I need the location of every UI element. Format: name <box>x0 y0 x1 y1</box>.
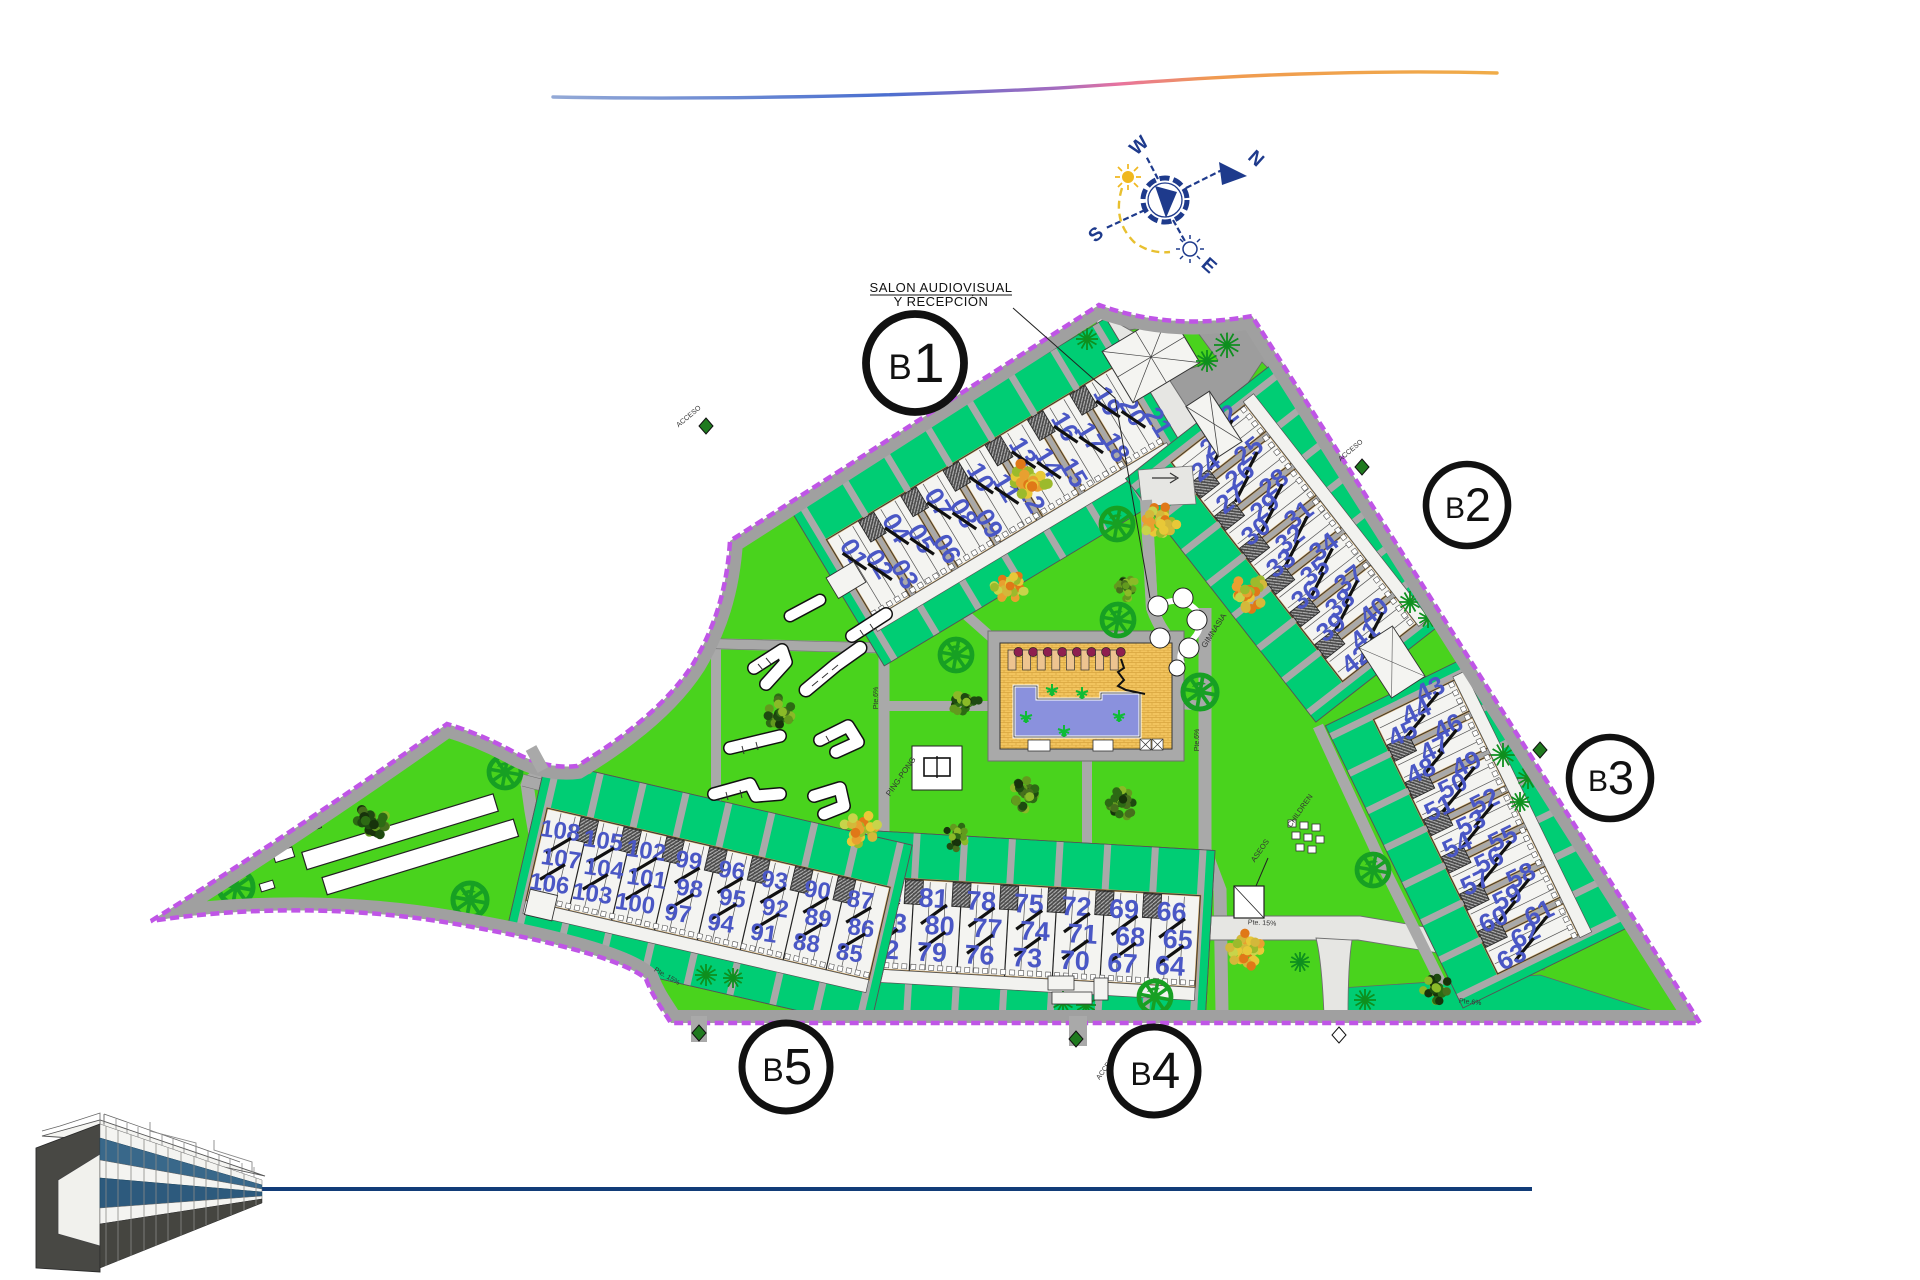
svg-text:B: B <box>1588 765 1608 798</box>
svg-text:90: 90 <box>802 875 832 905</box>
svg-text:94: 94 <box>706 908 737 939</box>
svg-text:67: 67 <box>1106 947 1138 979</box>
svg-text:Y RECEPCIÓN: Y RECEPCIÓN <box>894 294 989 309</box>
svg-text:Pte.6%: Pte.6% <box>873 687 880 710</box>
svg-text:1: 1 <box>913 331 944 394</box>
svg-text:3: 3 <box>1608 751 1634 804</box>
svg-text:4: 4 <box>1152 1042 1180 1099</box>
svg-text:5: 5 <box>784 1038 812 1095</box>
svg-text:103: 103 <box>570 878 613 910</box>
svg-text:SALON AUDIOVISUAL: SALON AUDIOVISUAL <box>870 280 1013 295</box>
svg-text:70: 70 <box>1059 945 1091 977</box>
svg-text:76: 76 <box>964 939 996 971</box>
svg-text:2: 2 <box>1465 478 1491 531</box>
svg-text:B: B <box>1445 492 1465 525</box>
svg-text:79: 79 <box>916 936 948 968</box>
svg-text:B: B <box>762 1052 783 1088</box>
svg-text:87: 87 <box>845 885 875 915</box>
svg-text:93: 93 <box>759 865 789 895</box>
svg-text:B: B <box>1130 1056 1151 1092</box>
svg-text:97: 97 <box>663 899 693 929</box>
svg-text:91: 91 <box>749 918 779 948</box>
svg-text:73: 73 <box>1011 942 1043 974</box>
svg-text:B: B <box>888 348 911 387</box>
svg-text:64: 64 <box>1154 950 1186 982</box>
svg-text:88: 88 <box>791 928 821 958</box>
svg-text:Pte.6%: Pte.6% <box>1194 729 1201 752</box>
svg-text:Pte. 15%: Pte. 15% <box>1248 919 1277 927</box>
svg-text:85: 85 <box>834 938 864 968</box>
svg-text:99: 99 <box>674 846 704 876</box>
svg-text:100: 100 <box>613 888 656 920</box>
svg-text:96: 96 <box>717 856 747 886</box>
